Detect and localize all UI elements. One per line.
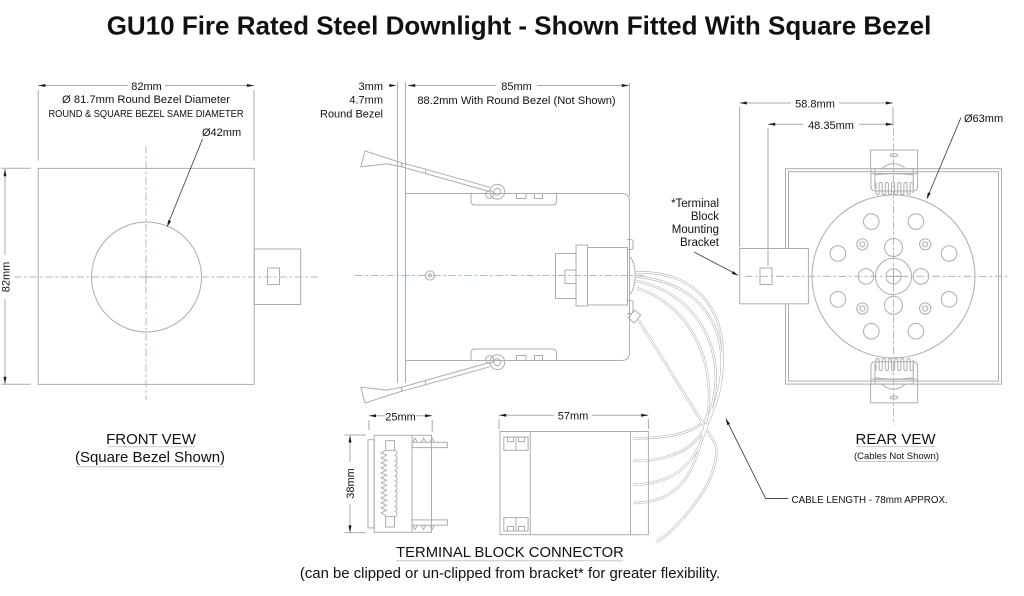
svg-text:48.35mm: 48.35mm: [808, 120, 854, 132]
svg-text:Block: Block: [691, 211, 719, 223]
svg-text:ROUND & SQUARE BEZEL SAME DIAM: ROUND & SQUARE BEZEL SAME DIAMETER: [49, 109, 244, 120]
svg-text:(Square Bezel Shown): (Square Bezel Shown): [75, 449, 225, 466]
svg-text:4.7mm: 4.7mm: [349, 95, 383, 107]
svg-text:82mm: 82mm: [131, 81, 162, 93]
svg-text:85mm: 85mm: [501, 81, 532, 93]
svg-text:FRONT VEW: FRONT VEW: [106, 431, 197, 448]
svg-text:88.2mm With Round Bezel (Not S: 88.2mm With Round Bezel (Not Shown): [417, 95, 616, 107]
svg-text:25mm: 25mm: [385, 411, 416, 423]
svg-text:TERMINAL BLOCK CONNECTOR: TERMINAL BLOCK CONNECTOR: [396, 545, 624, 561]
svg-text:38mm: 38mm: [345, 468, 357, 499]
svg-text:58.8mm: 58.8mm: [795, 99, 835, 111]
svg-text:GU10 Fire Rated Steel Downligh: GU10 Fire Rated Steel Downlight - Shown …: [107, 11, 932, 41]
svg-text:Ø63mm: Ø63mm: [964, 113, 1003, 125]
svg-text:Bracket: Bracket: [680, 237, 720, 249]
svg-text:57mm: 57mm: [558, 411, 589, 423]
svg-text:(can be clipped or un-clipped: (can be clipped or un-clipped from brack…: [300, 566, 720, 582]
svg-text:Round Bezel: Round Bezel: [320, 109, 383, 121]
svg-text:3mm: 3mm: [359, 81, 383, 93]
svg-text:Mounting: Mounting: [672, 224, 719, 236]
svg-text:Ø42mm: Ø42mm: [202, 127, 241, 139]
svg-text:82mm: 82mm: [1, 262, 13, 293]
svg-text:(Cables Not Shown): (Cables Not Shown): [854, 451, 939, 462]
svg-text:REAR VEW: REAR VEW: [855, 431, 936, 448]
svg-text:Ø 81.7mm Round Bezel Diameter: Ø 81.7mm Round Bezel Diameter: [62, 94, 230, 106]
svg-text:CABLE LENGTH - 78mm APPROX.: CABLE LENGTH - 78mm APPROX.: [792, 495, 948, 506]
svg-text:*Terminal: *Terminal: [671, 198, 719, 210]
